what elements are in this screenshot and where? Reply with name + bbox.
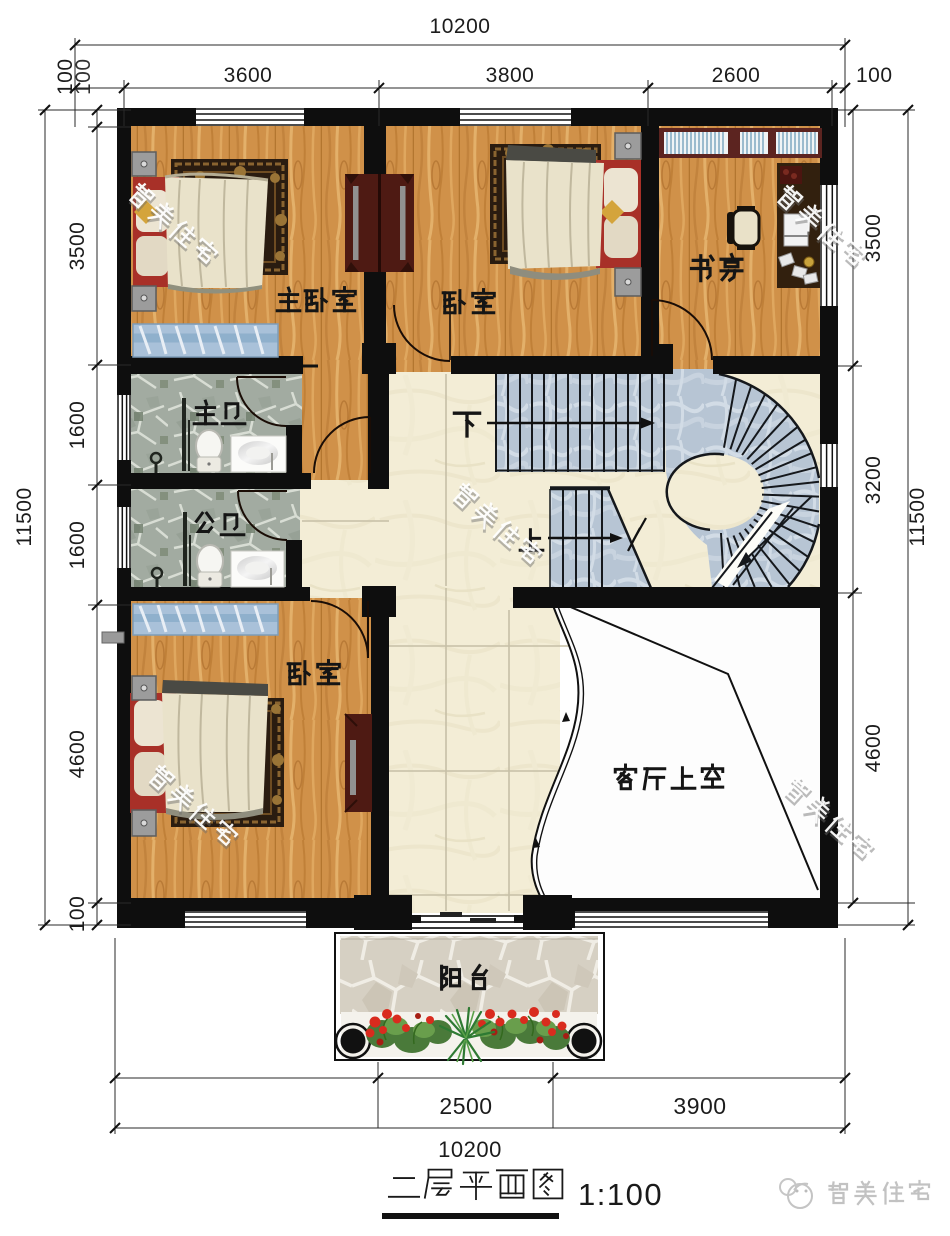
svg-text:1600: 1600 — [66, 401, 89, 450]
svg-text:11500: 11500 — [13, 487, 36, 546]
svg-text:3900: 3900 — [673, 1093, 726, 1119]
svg-text:2500: 2500 — [439, 1093, 492, 1119]
svg-text:3500: 3500 — [66, 222, 89, 271]
svg-text:2600: 2600 — [712, 64, 761, 87]
svg-text:4600: 4600 — [66, 730, 89, 779]
svg-text:3800: 3800 — [486, 64, 535, 87]
svg-text:3600: 3600 — [224, 64, 273, 87]
svg-text:100: 100 — [66, 896, 89, 933]
svg-text:1:100: 1:100 — [578, 1177, 663, 1212]
svg-text:10200: 10200 — [438, 1137, 502, 1162]
svg-text:4600: 4600 — [862, 724, 885, 773]
svg-text:11500: 11500 — [906, 487, 929, 546]
svg-text:100: 100 — [856, 64, 893, 87]
svg-text:3200: 3200 — [862, 456, 885, 505]
svg-text:1600: 1600 — [66, 521, 89, 570]
svg-text:10200: 10200 — [430, 15, 491, 38]
svg-text:100: 100 — [72, 58, 95, 95]
